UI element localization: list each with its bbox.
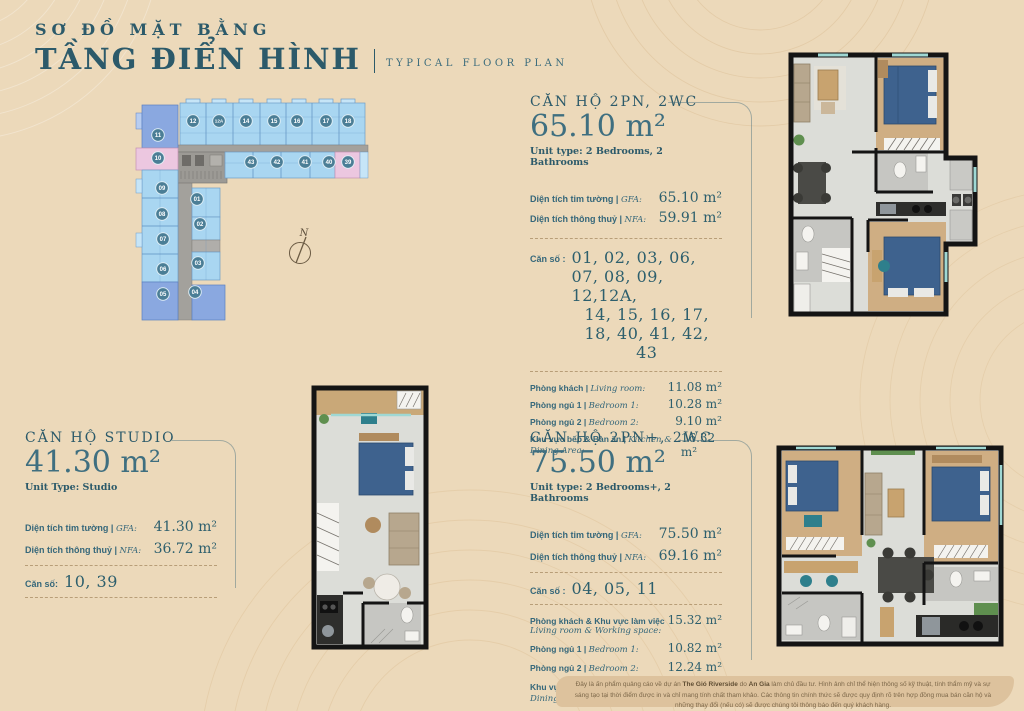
svg-text:06: 06	[160, 267, 167, 273]
svg-text:12: 12	[190, 119, 197, 125]
decorative-bracket-2pn	[668, 102, 752, 318]
svg-text:09: 09	[159, 186, 166, 192]
svg-text:16: 16	[294, 119, 301, 125]
svg-text:14: 14	[243, 119, 250, 125]
svg-text:43: 43	[248, 160, 255, 166]
floorplan-studio-image	[311, 385, 429, 650]
floorplan-2pn-image	[788, 52, 978, 317]
svg-text:03: 03	[195, 261, 202, 267]
decorative-bracket-studio	[172, 440, 236, 588]
svg-text:39: 39	[345, 160, 352, 166]
svg-text:11: 11	[155, 133, 162, 139]
svg-text:42: 42	[274, 160, 281, 166]
svg-text:15: 15	[271, 119, 278, 125]
svg-text:05: 05	[160, 292, 167, 298]
svg-text:18: 18	[345, 119, 352, 125]
title-divider	[374, 49, 375, 73]
site-plan-diagram: N 1212A141516171843424140391110090807060…	[120, 95, 460, 340]
svg-text:02: 02	[197, 222, 204, 228]
brochure-page: SƠ ĐỒ MẶT BẰNG TẦNG ĐIỂN HÌNH TYPICAL FL…	[0, 0, 1024, 711]
svg-text:10: 10	[155, 156, 162, 162]
floorplan-2pnplus-image	[776, 445, 1004, 650]
compass-icon: N	[290, 228, 311, 264]
svg-text:07: 07	[160, 237, 167, 243]
svg-text:N: N	[299, 228, 310, 239]
page-title-english: TYPICAL FLOOR PLAN	[386, 58, 568, 69]
decorative-bracket-2pnplus	[678, 440, 752, 660]
svg-text:12A: 12A	[215, 119, 224, 124]
disclaimer-text: Đây là ấn phẩm quảng cáo về dự án The Gi…	[556, 676, 1014, 707]
page-header: SƠ ĐỒ MẶT BẰNG TẦNG ĐIỂN HÌNH TYPICAL FL…	[35, 20, 568, 76]
page-subtitle: SƠ ĐỒ MẶT BẰNG	[35, 20, 568, 39]
svg-text:40: 40	[326, 160, 333, 166]
svg-text:01: 01	[194, 197, 201, 203]
svg-text:04: 04	[192, 290, 199, 296]
svg-text:41: 41	[302, 160, 309, 166]
page-title: TẦNG ĐIỂN HÌNH	[35, 42, 361, 76]
svg-text:08: 08	[159, 212, 166, 218]
svg-text:17: 17	[323, 119, 330, 125]
